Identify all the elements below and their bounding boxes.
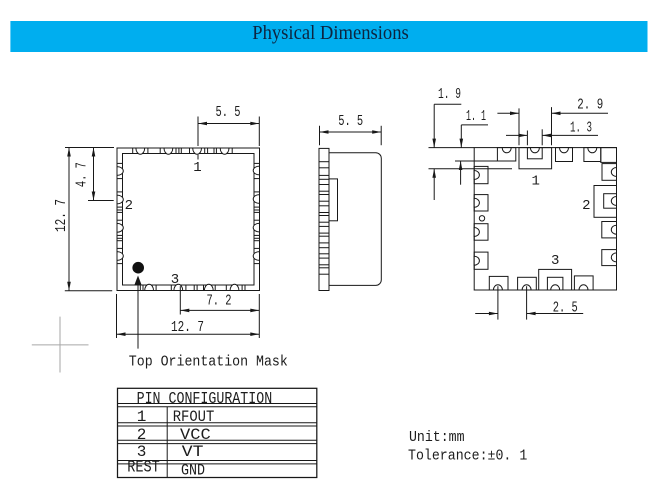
- svg-text:1. 1: 1. 1: [466, 108, 486, 125]
- svg-text:Physical Dimensions: Physical Dimensions: [252, 22, 409, 44]
- svg-text:2: 2: [582, 198, 590, 214]
- svg-text:7. 2: 7. 2: [207, 293, 232, 310]
- svg-text:12. 7: 12. 7: [53, 199, 70, 232]
- svg-text:2. 5: 2. 5: [553, 299, 578, 316]
- svg-text:Unit:mm: Unit:mm: [409, 429, 465, 446]
- svg-text:12. 7: 12. 7: [171, 319, 204, 336]
- svg-text:PIN CONFIGURATION: PIN CONFIGURATION: [137, 390, 273, 409]
- svg-text:1. 3: 1. 3: [570, 120, 592, 137]
- svg-text:1. 9: 1. 9: [438, 86, 461, 103]
- svg-text:3: 3: [171, 272, 179, 288]
- svg-text:Top Orientation Mask: Top Orientation Mask: [129, 354, 288, 371]
- svg-text:VT: VT: [182, 443, 204, 461]
- svg-text:2. 9: 2. 9: [577, 96, 603, 113]
- svg-text:1: 1: [193, 160, 201, 176]
- svg-text:5. 5: 5. 5: [338, 113, 363, 130]
- svg-text:GND: GND: [181, 462, 205, 480]
- svg-text:4. 7: 4. 7: [74, 162, 91, 187]
- svg-text:VCC: VCC: [180, 426, 211, 444]
- svg-text:2: 2: [137, 426, 147, 444]
- svg-text:2: 2: [125, 198, 133, 214]
- svg-text:3: 3: [551, 253, 559, 269]
- svg-text:Tolerance:±0. 1: Tolerance:±0. 1: [408, 448, 527, 465]
- svg-text:1: 1: [531, 174, 539, 190]
- svg-text:5. 5: 5. 5: [216, 104, 241, 121]
- svg-text:REST: REST: [127, 459, 160, 478]
- svg-text:RFOUT: RFOUT: [173, 408, 215, 426]
- svg-text:1: 1: [137, 408, 147, 426]
